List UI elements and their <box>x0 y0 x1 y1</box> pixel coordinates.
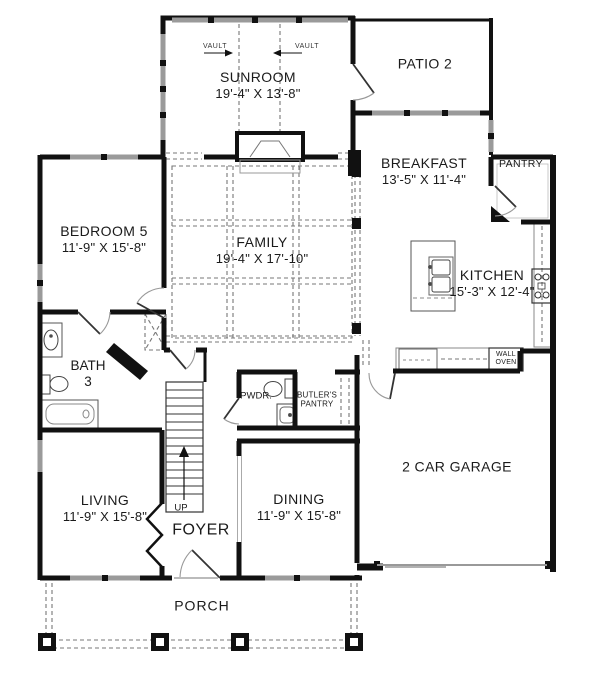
room-label-porch: PORCH <box>174 598 230 615</box>
room-name: BEDROOM 5 <box>60 223 148 240</box>
room-label-pantry: PANTRY <box>499 158 543 170</box>
room-label-garage: 2 CAR GARAGE <box>402 459 512 476</box>
dining-cased-opening <box>238 456 242 542</box>
wall-oven-label: WALL OVEN <box>495 351 516 368</box>
room-label-foyer: FOYER <box>172 522 230 541</box>
room-dims: 11'-9" X 15'-8" <box>257 508 341 523</box>
room-dims: 15'-3" X 12'-4" <box>449 284 534 299</box>
wall-oven-line1: WALL <box>495 351 516 359</box>
room-label-family: FAMILY 19'-4" X 17'-10" <box>216 234 309 266</box>
room-label-dining: DINING 11'-9" X 15'-8" <box>257 491 341 523</box>
butlers-line1: BUTLER'S <box>297 391 337 400</box>
room-name: DINING <box>257 491 341 508</box>
room-dims: 11'-9" X 15'-8" <box>63 509 147 524</box>
room-dims: 11'-9" X 15'-8" <box>60 240 148 255</box>
room-name: LIVING <box>63 492 147 509</box>
room-name: KITCHEN <box>449 267 534 284</box>
room-label-kitchen: KITCHEN 15'-3" X 12'-4" <box>449 267 534 299</box>
room-dims: 19'-4" X 17'-10" <box>216 251 309 266</box>
room-name: BREAKFAST <box>381 155 467 172</box>
vault-label-left: VAULT <box>203 43 227 51</box>
stairs-up-label: UP <box>174 502 187 513</box>
room-dims: 19'-4" X 13'-8" <box>215 86 300 101</box>
room-label-patio2: PATIO 2 <box>398 56 452 73</box>
room-label-butlers-pantry: BUTLER'S PANTRY <box>297 391 337 410</box>
floor-plan: VAULT VAULT SUNROOM 19'-4" X 13'-8" PATI… <box>0 0 607 687</box>
room-name: BATH <box>70 358 105 374</box>
room-name: SUNROOM <box>215 69 300 86</box>
room-label-powder: PWDR. <box>240 390 272 401</box>
dashed-lines <box>46 24 542 649</box>
room-number: 3 <box>70 374 105 390</box>
floorplan-drawing <box>0 0 607 687</box>
room-label-sunroom: SUNROOM 19'-4" X 13'-8" <box>215 69 300 101</box>
room-label-living: LIVING 11'-9" X 15'-8" <box>63 492 147 524</box>
room-label-bedroom5: BEDROOM 5 11'-9" X 15'-8" <box>60 223 148 255</box>
butlers-line2: PANTRY <box>297 400 337 409</box>
vault-label-right: VAULT <box>295 43 319 51</box>
room-dims: 13'-5" X 11'-4" <box>381 172 467 187</box>
room-label-bath3: BATH 3 <box>70 358 105 390</box>
wall-oven-line2: OVEN <box>495 359 516 367</box>
stairs <box>166 382 203 512</box>
room-name: FAMILY <box>216 234 309 251</box>
room-label-breakfast: BREAKFAST 13'-5" X 11'-4" <box>381 155 467 187</box>
